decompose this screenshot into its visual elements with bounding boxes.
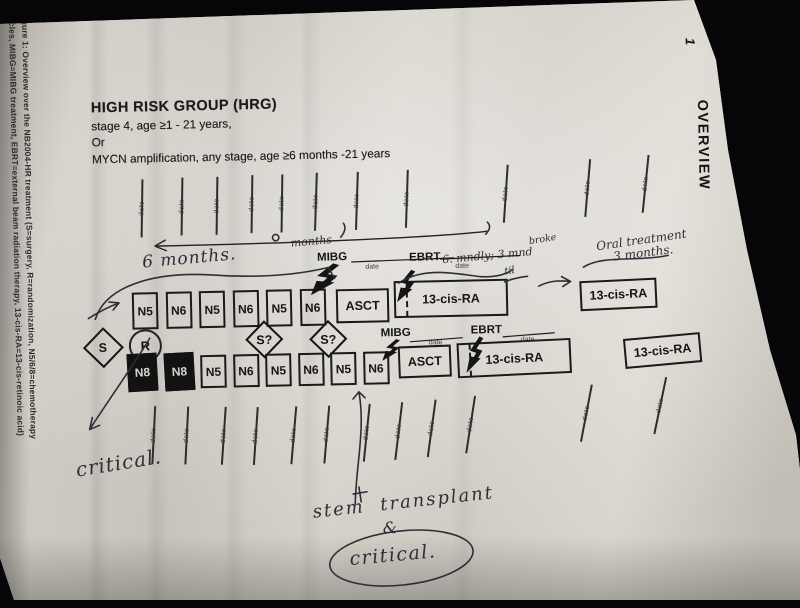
chemo-cycle-box: N6 xyxy=(233,354,260,388)
date-tick: date xyxy=(314,173,318,231)
date-tick-label: date xyxy=(502,186,510,202)
chemo-cycle-label: N5 xyxy=(204,302,220,316)
page-number: 1 xyxy=(683,38,698,46)
photographed-paper-sheet: Figure 1: Overview over the NB2004-HR tr… xyxy=(0,0,800,600)
date-tick-label: date xyxy=(252,428,260,444)
chemo-cycle-box: N6 xyxy=(363,351,390,385)
handwriting-stem-transplant: stem transplant xyxy=(312,482,495,523)
ebrt-label-arm1: EBRT xyxy=(409,251,441,264)
chemo-cycle-label: N8 xyxy=(134,365,150,380)
chemo-cycle-box: N5 xyxy=(330,352,357,386)
date-tick-label: date xyxy=(178,199,185,214)
handwriting-critical-left: critical. xyxy=(74,444,163,482)
ebrt-window-dashed-line xyxy=(406,282,409,317)
date-tick-label: date xyxy=(655,397,665,413)
chemo-cycle-label: N6 xyxy=(238,302,254,316)
chemo-cycle-box: N5 xyxy=(266,289,293,327)
ebrt-window-dashed-line xyxy=(469,344,473,377)
handwriting-critical-circled: critical. xyxy=(349,540,438,570)
date-tick: date xyxy=(584,159,591,217)
chemo-cycle-label: N8 xyxy=(171,364,187,379)
handwriting-six-months: 6 months. xyxy=(141,244,237,272)
date-tick: date xyxy=(427,400,437,458)
date-tick: date xyxy=(184,406,189,464)
ebrt-date-label-arm2: date xyxy=(521,336,535,343)
pen-hook-right xyxy=(485,222,489,234)
pen-underline-til xyxy=(505,276,528,281)
date-tick: date xyxy=(653,377,667,434)
date-tick: date xyxy=(141,179,143,237)
header-line3: MYCN amplification, any stage, age ≥6 mo… xyxy=(92,146,390,166)
handwriting-ampersand: & xyxy=(383,518,398,537)
date-tick: date xyxy=(580,384,593,441)
date-tick-label: date xyxy=(583,180,591,196)
date-tick: date xyxy=(253,407,259,465)
chemo-cycle-box: N5 xyxy=(265,353,292,387)
date-tick-label: date xyxy=(248,196,255,211)
ra-box-arm1-right: 13-cis-RA xyxy=(579,278,657,312)
surgery-node: S xyxy=(83,327,124,368)
date-tick: date xyxy=(355,172,359,230)
chemo-cycle-box: N6 xyxy=(165,291,192,329)
handwriting-interval: 6. mndly; 3 mnd xyxy=(442,245,533,266)
mibg-label-arm2: MIBG xyxy=(381,327,411,340)
ebrt-label-arm2: EBRT xyxy=(471,324,503,337)
date-tick-label: date xyxy=(641,176,650,192)
chemo-cycle-box: N6 xyxy=(299,289,326,327)
date-tick: date xyxy=(323,406,330,464)
surgery-question-label: S? xyxy=(256,332,272,346)
asct-box-arm2: ASCT xyxy=(398,344,452,378)
date-tick: date xyxy=(251,175,253,233)
header: HIGH RISK GROUP (HRG) stage 4, age ≥1 - … xyxy=(91,94,391,166)
chemo-cycle-box: N5 xyxy=(200,355,227,389)
ra-label: 13-cis-RA xyxy=(589,286,647,303)
ra-box-arm2: 13-cis-RA xyxy=(456,338,572,378)
date-tick-label: date xyxy=(290,427,298,443)
chemo-cycle-label: N6 xyxy=(305,300,321,314)
date-tick: date xyxy=(290,406,297,464)
ra-box-arm1: 13-cis-RA xyxy=(394,279,509,318)
pen-hook-mid xyxy=(340,223,345,237)
date-tick: date xyxy=(503,165,509,223)
asct-label: ASCT xyxy=(408,354,443,369)
pen-circle-mark xyxy=(272,234,279,241)
pen-arrow-to-n5 xyxy=(88,302,119,319)
date-tick-label: date xyxy=(362,425,371,441)
date-tick: date xyxy=(394,402,403,460)
chemo-cycle-box: N6 xyxy=(298,353,325,387)
chemo-cycle-label: N5 xyxy=(271,363,287,377)
chemo-cycle-label: N6 xyxy=(238,364,254,378)
date-tick-label: date xyxy=(150,427,158,443)
date-tick-label: date xyxy=(183,428,191,444)
mibg-date-label-arm1: date xyxy=(365,263,379,270)
chemo-cycle-box: N5 xyxy=(199,291,226,329)
ra-label: 13-cis-RA xyxy=(422,291,480,306)
date-tick-label: date xyxy=(278,196,285,211)
figure-caption: Figure 1: Overview over the NB2004-HR tr… xyxy=(6,12,43,598)
date-tick-label: date xyxy=(353,193,360,208)
page-content: Figure 1: Overview over the NB2004-HR tr… xyxy=(0,0,800,608)
chemo-cycle-box: N6 xyxy=(232,290,259,328)
date-tick-label: date xyxy=(466,416,475,432)
mibg-label-arm1: MIBG xyxy=(317,251,347,264)
chemo-cycle-label: N5 xyxy=(271,301,287,315)
chemo-cycle-label: N6 xyxy=(303,362,319,376)
date-tick-label: date xyxy=(312,194,319,209)
date-tick: date xyxy=(216,177,218,235)
chemo-row-arm1: N5N6N5N6N5N6 xyxy=(132,289,326,330)
mibg-date-label-arm2: date xyxy=(429,339,443,346)
chemo-cycle-label: N5 xyxy=(137,304,153,318)
handwriting-til: til xyxy=(504,265,516,277)
date-tick-label: date xyxy=(427,420,436,436)
asct-box-arm1: ASCT xyxy=(336,288,390,323)
date-tick-label: date xyxy=(403,191,410,206)
date-tick: date xyxy=(281,174,283,232)
ra-label: 13-cis-RA xyxy=(485,350,543,367)
date-tick-label: date xyxy=(581,405,591,421)
date-tick: date xyxy=(181,178,183,236)
date-tick: date xyxy=(465,396,476,454)
surgery-question-label: S? xyxy=(320,332,336,346)
chemo-cycle-label: N5 xyxy=(206,364,222,378)
date-tick: date xyxy=(363,404,371,462)
chemo-cycle-label: N6 xyxy=(171,303,187,317)
chemo-cycle-box: N8 xyxy=(126,353,158,393)
handwriting-broke: broke xyxy=(528,232,557,247)
chemo-cycle-label: N6 xyxy=(368,361,384,375)
surgery-node-label: S xyxy=(99,341,108,355)
date-tick-label: date xyxy=(138,201,145,216)
date-tick-label: date xyxy=(323,427,331,443)
section-tab-overview: OVERVIEW xyxy=(694,99,712,190)
chemo-row-arm2: N8N8N5N6N5N6N5N6 xyxy=(127,351,389,391)
date-tick-label: date xyxy=(213,198,220,213)
date-tick: date xyxy=(642,155,650,213)
ra-box-arm2-right: 13-cis-RA xyxy=(623,332,702,369)
date-tick-label: date xyxy=(220,428,228,444)
asct-label: ASCT xyxy=(345,298,379,313)
chemo-cycle-box: N8 xyxy=(163,352,195,392)
chemo-cycle-box: N5 xyxy=(132,292,159,330)
chemo-cycle-label: N5 xyxy=(336,362,352,376)
handwriting-months: months xyxy=(290,233,332,250)
ra-label: 13-cis-RA xyxy=(633,341,692,360)
pen-arrow-to-right-ra xyxy=(539,276,571,287)
date-tick: date xyxy=(405,170,409,228)
date-tick: date xyxy=(221,407,227,465)
date-tick-label: date xyxy=(394,423,403,439)
